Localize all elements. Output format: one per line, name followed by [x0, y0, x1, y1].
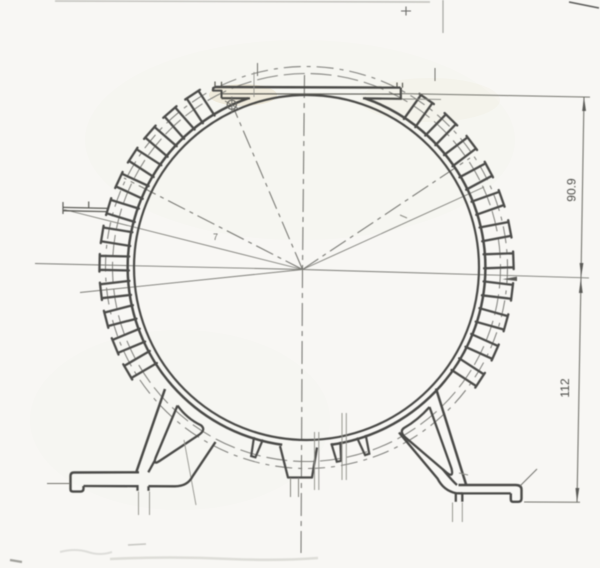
svg-text:7: 7	[213, 232, 218, 242]
svg-text:90.9: 90.9	[565, 178, 579, 202]
svg-text:112: 112	[558, 378, 572, 397]
